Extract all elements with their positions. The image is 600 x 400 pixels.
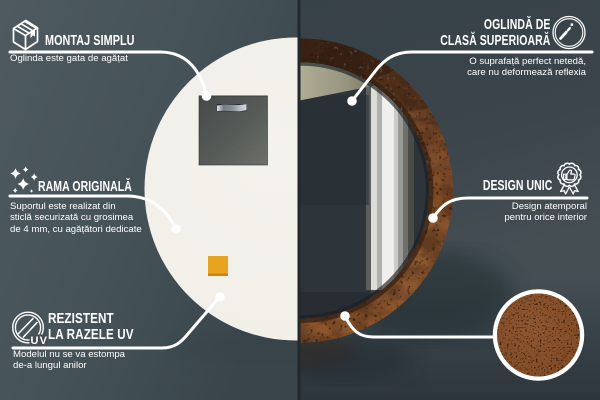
svg-text:UV: UV <box>31 335 48 347</box>
